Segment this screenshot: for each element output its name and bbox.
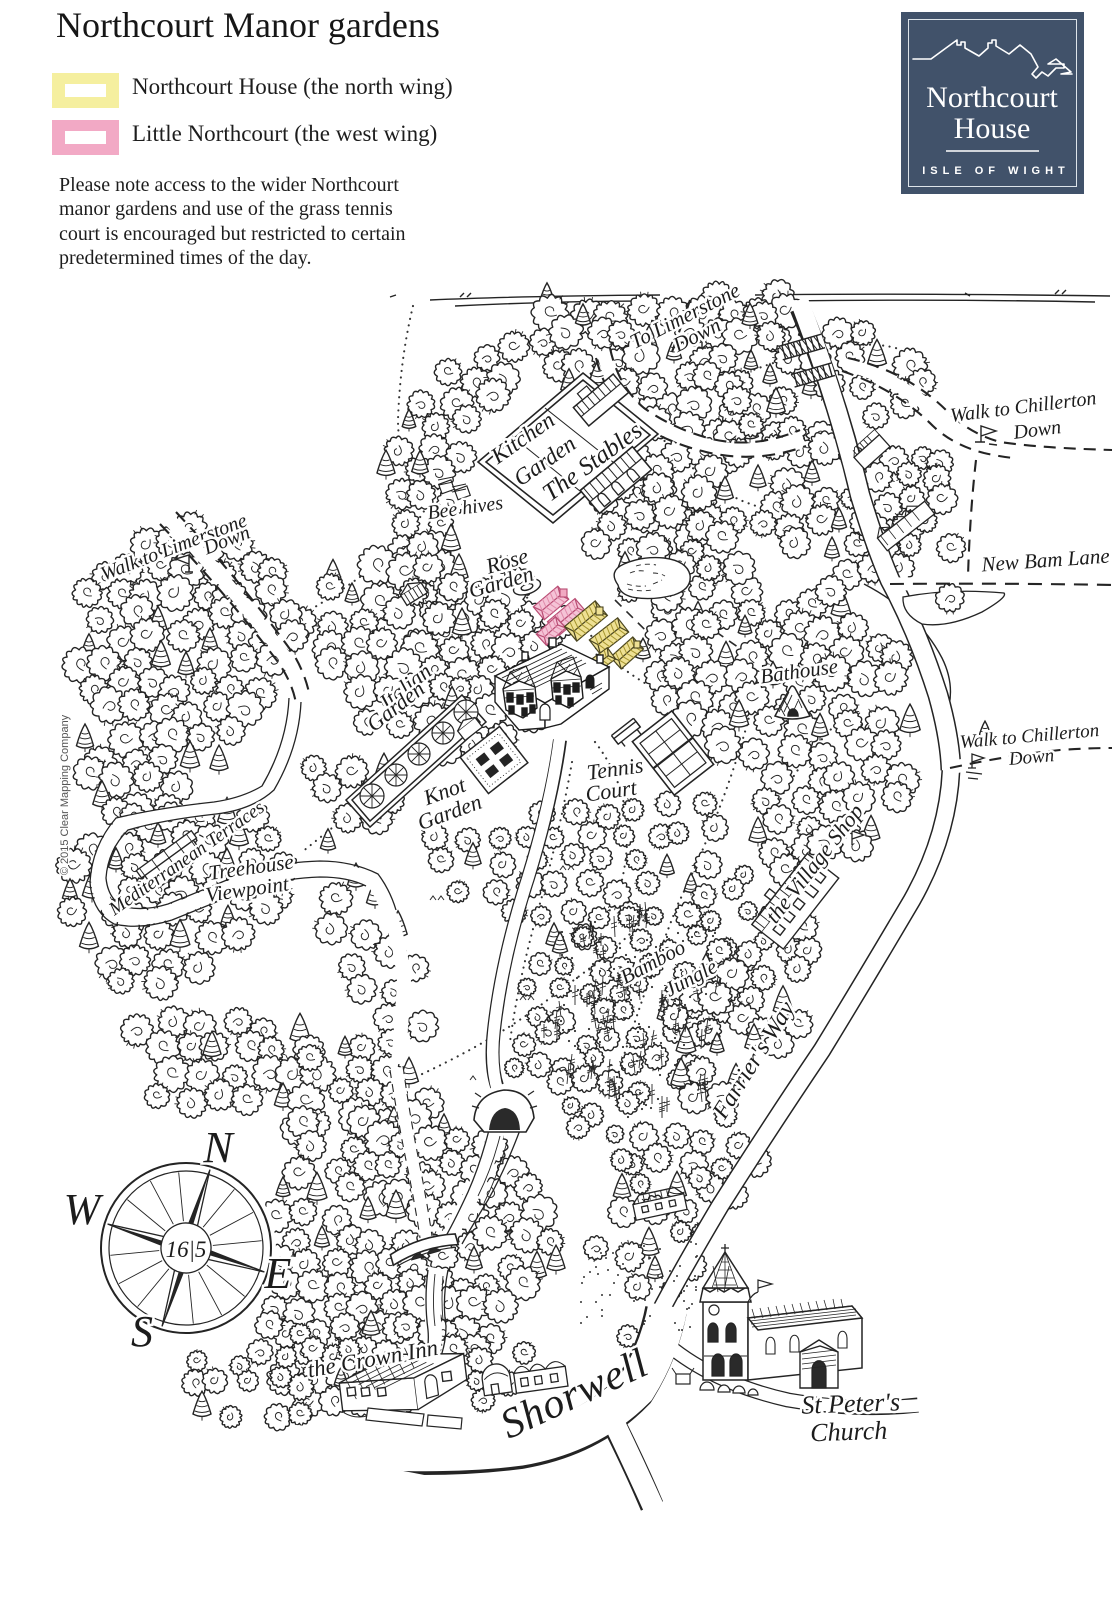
svg-text:Down: Down: [1007, 745, 1055, 770]
svg-text:Down: Down: [1011, 416, 1062, 444]
svg-text:N: N: [202, 1123, 235, 1172]
svg-text:S: S: [131, 1307, 153, 1356]
svg-text:New Bam Lane: New Bam Lane: [980, 544, 1111, 577]
svg-text:Church: Church: [810, 1416, 888, 1448]
svg-text:16|5: 16|5: [166, 1237, 207, 1262]
svg-text:W: W: [64, 1185, 104, 1234]
svg-text:© 2015 Clear Mapping Company: © 2015 Clear Mapping Company: [59, 714, 71, 875]
svg-text:E: E: [264, 1249, 292, 1298]
